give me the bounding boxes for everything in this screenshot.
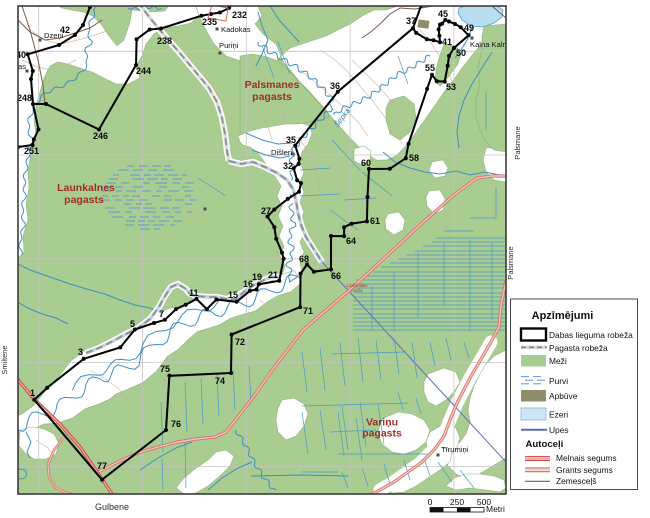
svg-text:Dabas lieguma robeža: Dabas lieguma robeža <box>549 330 633 340</box>
svg-text:232: 232 <box>232 10 247 20</box>
svg-text:Apzīmējumi: Apzīmējumi <box>532 310 594 322</box>
svg-text:66: 66 <box>331 271 341 281</box>
svg-text:36: 36 <box>330 81 340 91</box>
svg-text:37: 37 <box>406 16 416 26</box>
svg-text:64: 64 <box>346 236 356 246</box>
svg-text:35: 35 <box>286 135 296 145</box>
svg-text:76: 76 <box>171 419 181 429</box>
svg-text:11: 11 <box>189 288 199 298</box>
svg-text:72: 72 <box>235 337 245 347</box>
svg-text:Dzeņi: Dzeņi <box>44 31 64 40</box>
svg-text:Palsmanes: Palsmanes <box>245 79 300 91</box>
svg-text:Meži: Meži <box>549 356 567 366</box>
svg-text:Pagasta robeža: Pagasta robeža <box>549 343 608 353</box>
svg-text:Puriņi: Puriņi <box>219 41 239 50</box>
svg-text:7: 7 <box>159 309 164 319</box>
svg-text:49: 49 <box>464 23 474 33</box>
svg-text:238: 238 <box>157 36 172 46</box>
svg-text:19: 19 <box>252 272 262 282</box>
svg-text:74: 74 <box>215 376 225 386</box>
svg-text:3: 3 <box>78 347 83 357</box>
svg-text:Purvi: Purvi <box>549 376 568 386</box>
svg-text:pagasts: pagasts <box>362 428 402 440</box>
svg-text:Grants segums: Grants segums <box>556 465 613 475</box>
svg-text:246: 246 <box>93 131 108 141</box>
svg-text:Launkalnes: Launkalnes <box>57 182 115 194</box>
svg-text:71: 71 <box>303 306 313 316</box>
svg-text:32: 32 <box>283 161 293 171</box>
svg-text:Zemesceļš: Zemesceļš <box>556 476 597 486</box>
svg-text:Smiltene: Smiltene <box>0 345 9 374</box>
svg-text:250: 250 <box>450 497 464 507</box>
svg-text:21: 21 <box>268 270 278 280</box>
svg-text:Palsmane: Palsmane <box>513 126 522 159</box>
svg-text:53: 53 <box>446 82 456 92</box>
svg-text:Autoceļi: Autoceļi <box>526 439 564 450</box>
svg-text:61: 61 <box>370 216 380 226</box>
svg-text:pagasts: pagasts <box>64 194 104 206</box>
svg-text:Melnais segums: Melnais segums <box>556 453 617 463</box>
svg-text:Tīrumiņi: Tīrumiņi <box>441 445 469 454</box>
svg-text:235: 235 <box>202 17 217 27</box>
svg-text:68: 68 <box>299 254 309 264</box>
svg-text:0: 0 <box>428 497 433 507</box>
svg-text:45: 45 <box>438 9 448 19</box>
svg-text:Gulbene: Gulbene <box>95 502 129 512</box>
svg-text:Kalna Kaln.: Kalna Kaln. <box>470 40 509 49</box>
svg-text:251: 251 <box>24 146 39 156</box>
svg-text:77: 77 <box>97 461 107 471</box>
svg-text:5: 5 <box>130 319 135 329</box>
svg-text:Apbūve: Apbūve <box>549 391 578 401</box>
svg-text:244: 244 <box>136 66 151 76</box>
svg-text:Dišleri: Dišleri <box>271 148 292 157</box>
svg-text:muiža: muiža <box>351 288 363 293</box>
svg-text:58: 58 <box>409 153 419 163</box>
svg-text:pagasts: pagasts <box>252 91 292 103</box>
svg-text:55: 55 <box>425 63 435 73</box>
svg-text:75: 75 <box>160 364 170 374</box>
svg-text:50: 50 <box>456 48 466 58</box>
svg-text:60: 60 <box>361 158 371 168</box>
svg-text:15: 15 <box>228 290 238 300</box>
svg-text:Upes: Upes <box>549 425 569 435</box>
svg-text:Kadokas: Kadokas <box>221 25 251 34</box>
svg-text:as: as <box>18 62 26 71</box>
svg-text:41: 41 <box>442 37 452 47</box>
svg-text:Metri: Metri <box>486 504 505 514</box>
svg-text:Palsmane: Palsmane <box>506 246 515 279</box>
svg-text:Ezeri: Ezeri <box>549 410 568 420</box>
svg-text:248: 248 <box>17 93 32 103</box>
svg-text:1: 1 <box>30 388 35 398</box>
svg-text:27: 27 <box>261 206 271 216</box>
